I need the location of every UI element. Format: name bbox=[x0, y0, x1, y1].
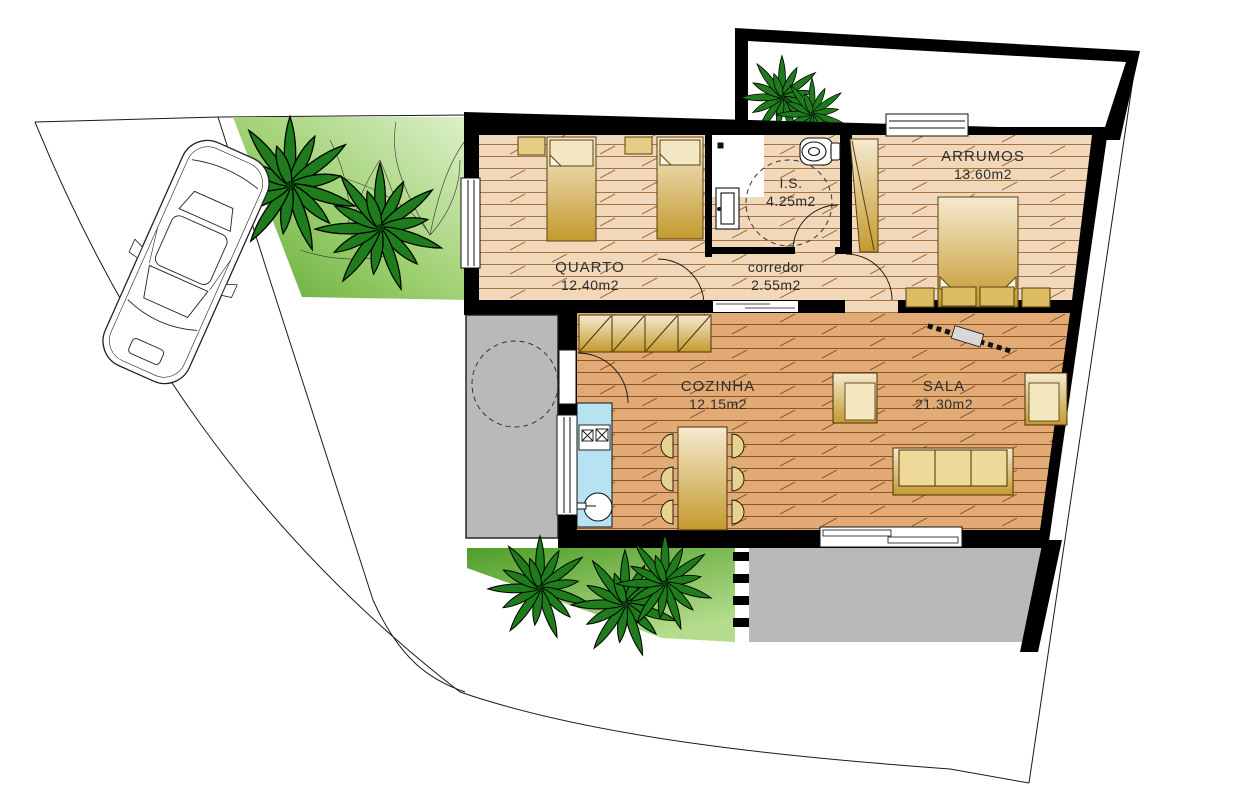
room-area-is: 4.25m2 bbox=[766, 193, 816, 209]
shower-drain bbox=[718, 143, 723, 148]
room-area-sala: 21.30m2 bbox=[915, 396, 973, 412]
opening-corredor-sala bbox=[713, 301, 798, 312]
nightstand bbox=[1022, 288, 1050, 307]
sliding-door-sala bbox=[820, 527, 962, 547]
window-cozinha bbox=[557, 415, 577, 515]
patio-bottom bbox=[741, 540, 1062, 652]
room-area-corredor: 2.55m2 bbox=[751, 277, 801, 293]
room-area-arrumos: 13.60m2 bbox=[954, 166, 1012, 182]
sofa bbox=[893, 448, 1013, 495]
car bbox=[85, 128, 287, 396]
room-area-quarto: 12.40m2 bbox=[561, 277, 619, 293]
room-label-arrumos: ARRUMOS bbox=[941, 148, 1025, 165]
double-bed bbox=[938, 197, 1018, 307]
window-arrumos bbox=[886, 114, 968, 136]
washbasin-cabinet bbox=[716, 188, 739, 229]
nightstand bbox=[906, 288, 934, 307]
kitchen-cabinets bbox=[579, 315, 711, 352]
armchair bbox=[1025, 373, 1067, 425]
garden-bottom bbox=[467, 534, 735, 656]
single-bed bbox=[547, 137, 596, 241]
floor-plan-svg: QUARTO 12.40m2 corredor 2.55m2 I.S. 4.25… bbox=[0, 0, 1257, 793]
nightstand bbox=[625, 137, 652, 154]
room-area-cozinha: 12.15m2 bbox=[689, 396, 747, 412]
room-label-corredor: corredor bbox=[748, 259, 804, 275]
room-label-quarto: QUARTO bbox=[555, 259, 625, 276]
floor-plan-page: QUARTO 12.40m2 corredor 2.55m2 I.S. 4.25… bbox=[0, 0, 1257, 793]
room-label-cozinha: COZINHA bbox=[681, 378, 756, 395]
window-quarto bbox=[461, 178, 480, 268]
patio-left bbox=[466, 315, 558, 538]
single-bed bbox=[657, 137, 703, 239]
armchair bbox=[833, 373, 877, 423]
room-label-is: I.S. bbox=[779, 175, 802, 191]
room-label-sala: SALA bbox=[923, 378, 965, 395]
dining-table bbox=[678, 427, 727, 530]
stove bbox=[579, 425, 610, 450]
nightstand bbox=[518, 137, 545, 155]
